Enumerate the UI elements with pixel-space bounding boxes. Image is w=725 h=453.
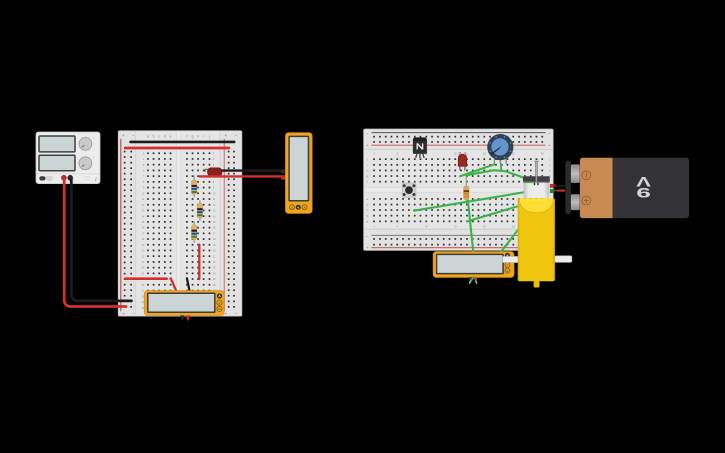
svg-text:j: j	[208, 135, 210, 139]
svg-text:V: V	[635, 174, 651, 190]
svg-text:e: e	[170, 135, 172, 139]
svg-text:g: g	[192, 135, 194, 139]
svg-text:current: current	[84, 178, 91, 181]
svg-text:b: b	[153, 135, 155, 139]
svg-text:a: a	[147, 135, 149, 139]
svg-text:h: h	[197, 135, 199, 139]
svg-text:V: V	[218, 301, 220, 305]
svg-text:on: on	[48, 178, 50, 180]
svg-text:V: V	[297, 205, 299, 209]
svg-text:f: f	[186, 135, 187, 139]
svg-text:V: V	[506, 263, 508, 267]
svg-text:voltage: voltage	[84, 176, 91, 179]
svg-text:d: d	[164, 135, 166, 139]
